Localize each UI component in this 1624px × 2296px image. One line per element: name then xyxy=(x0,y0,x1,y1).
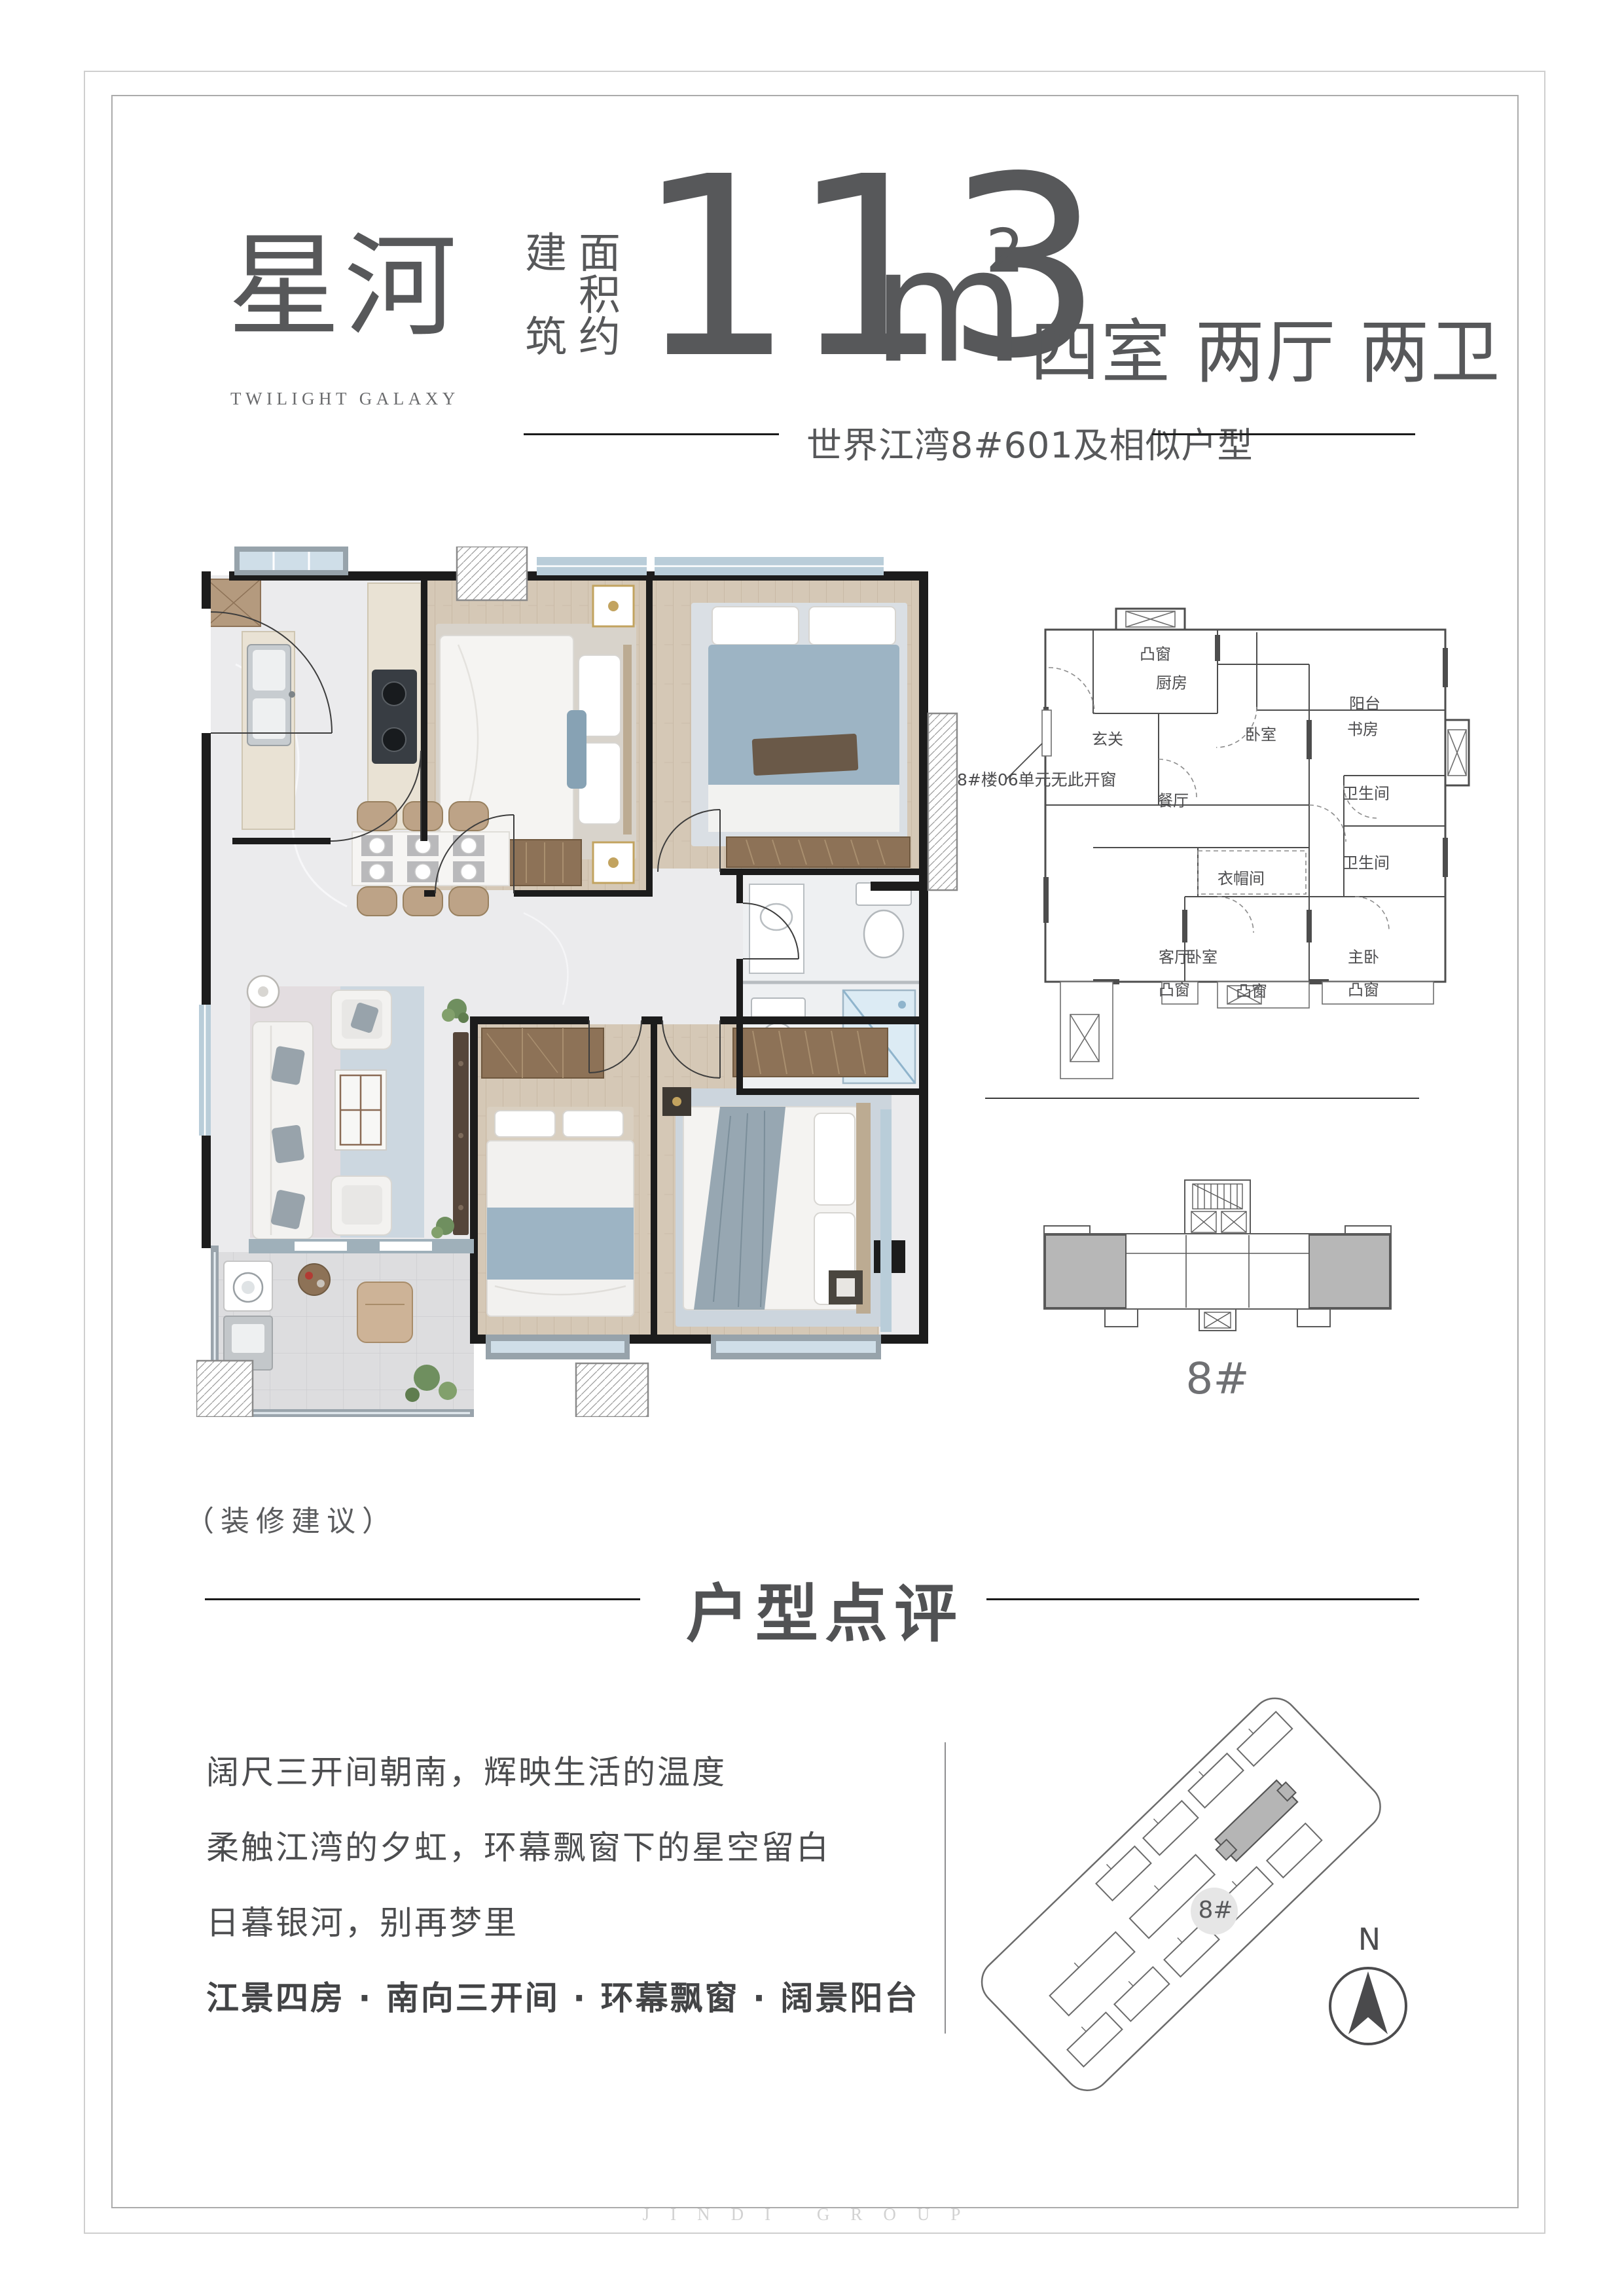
review-line: 柔触江湾的夕虹，环幕飘窗下的星空留白 xyxy=(206,1821,831,1869)
review-line: 日暮银河，别再梦里 xyxy=(206,1897,518,1944)
room-label: 衣帽间 xyxy=(1218,866,1265,889)
highlight-unit-left xyxy=(1045,1235,1126,1308)
page-title: 星河 xyxy=(228,230,461,343)
siteplan xyxy=(952,1656,1542,2127)
location-rule-right xyxy=(1152,433,1415,435)
review-highlight: 江景四房 · 南向三开间 · 环幕飘窗 · 阔景阳台 xyxy=(206,1972,919,2019)
room-label: 凸窗 xyxy=(1140,641,1171,664)
room-label: 凸窗 xyxy=(1159,977,1190,1000)
review-rule-left xyxy=(205,1598,640,1600)
entry-door-gap xyxy=(202,609,211,733)
area-prefix-col1: 建筑 xyxy=(525,233,567,359)
balcony-table xyxy=(298,1264,330,1295)
main-floorplan-render xyxy=(196,547,959,1417)
area-prefix-col2-wrap: 面积约 xyxy=(579,233,621,359)
room-label: 厨房 xyxy=(1156,670,1187,693)
room-label: 阳台 xyxy=(1349,691,1380,714)
bath-vanity xyxy=(749,884,804,973)
poster-page: 星河 TWILIGHT GALAXY 建筑 面积约 113 m 2 四室 两厅 … xyxy=(0,0,1624,2296)
highlight-unit-right xyxy=(1309,1235,1390,1308)
area-prefix-col2: 面积约 xyxy=(579,233,621,359)
north-label: N xyxy=(1350,1922,1389,1957)
room-label: 卫生间 xyxy=(1343,781,1390,804)
cad-schematic xyxy=(1001,589,1506,1086)
ac-platform-right xyxy=(928,713,957,890)
area-prefix: 建筑 xyxy=(525,233,567,359)
location-note: 世界江湾8#601及相似户型 xyxy=(806,416,1254,468)
room-label: 凸窗 xyxy=(1236,978,1267,1001)
room-label: 玄关 xyxy=(1092,726,1123,749)
siteplan-building-label: 8# xyxy=(1193,1897,1238,1924)
review-section-title: 户型点评 xyxy=(686,1563,964,1654)
page-subtitle-en: TWILIGHT GALAXY xyxy=(230,389,460,409)
toilet xyxy=(864,910,903,958)
keyplan-building-label: 8# xyxy=(1172,1354,1263,1404)
ac-unit-box-left xyxy=(196,1361,253,1417)
ac-unit-box-bottom xyxy=(576,1363,648,1417)
review-divider xyxy=(945,1742,946,2034)
master-side-window xyxy=(880,1109,892,1332)
bedroom-3 xyxy=(691,603,910,867)
brand-watermark: JINDI GROUP xyxy=(0,2204,1624,2225)
room-label: 客厅 xyxy=(1159,944,1190,967)
room-label: 凸窗 xyxy=(1348,977,1379,1000)
room-label: 书房 xyxy=(1347,717,1379,740)
building-keyplan xyxy=(1028,1175,1407,1345)
room-label: 卫生间 xyxy=(1343,850,1390,873)
room-label: 主卧 xyxy=(1348,944,1379,967)
decor-note: （装修建议） xyxy=(185,1498,397,1539)
right-column-divider xyxy=(985,1098,1419,1099)
room-label: 卧室 xyxy=(1245,722,1276,745)
layout-spec: 四室 两厅 两卫 xyxy=(1030,296,1501,397)
room-label: 卧室 xyxy=(1186,944,1218,967)
schematic-callout: 8#楼06单元无此开窗 xyxy=(957,767,1117,791)
balcony-door xyxy=(249,1239,474,1253)
north-compass xyxy=(1330,1968,1406,2044)
review-rule-right xyxy=(986,1598,1419,1600)
room-label: 餐厅 xyxy=(1157,788,1189,811)
area-superscript: 2 xyxy=(986,216,1024,286)
lounge-chair xyxy=(357,1282,412,1342)
north-arrow xyxy=(1348,1971,1388,2034)
dining-set xyxy=(352,802,509,916)
ac-unit-box xyxy=(457,547,527,600)
review-line: 阔尺三开间朝南，辉映生活的温度 xyxy=(206,1746,727,1793)
location-rule-left xyxy=(524,433,779,435)
